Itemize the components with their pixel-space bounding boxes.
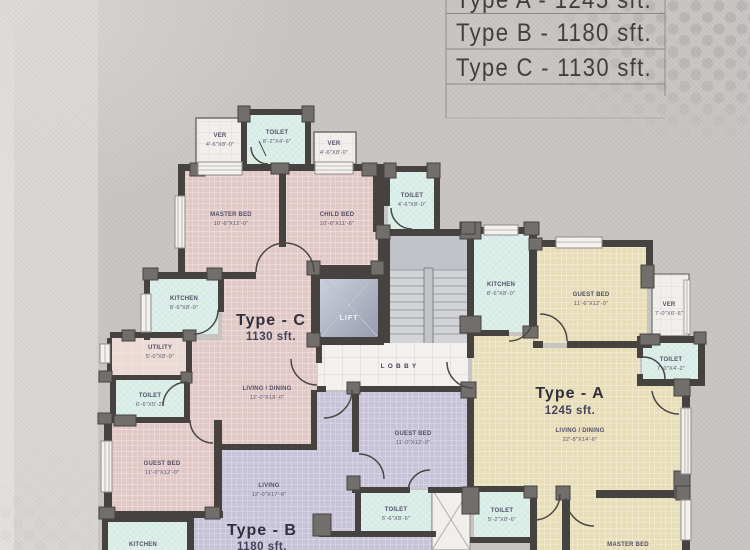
svg-text:MASTER BED: MASTER BED	[210, 212, 252, 218]
svg-text:10'-6"X11'-6": 10'-6"X11'-6"	[320, 221, 354, 227]
svg-text:Type - C: Type - C	[236, 312, 306, 329]
svg-text:5'-0"X8'-0": 5'-0"X8'-0"	[146, 354, 174, 360]
svg-text:4'-6"X8'-0": 4'-6"X8'-0"	[206, 142, 234, 148]
svg-text:VER: VER	[328, 141, 341, 147]
svg-text:TOILET: TOILET	[139, 393, 162, 399]
svg-text:10'-6"X12'-0": 10'-6"X12'-0"	[214, 221, 249, 227]
svg-text:TOILET: TOILET	[266, 130, 289, 136]
svg-text:11'-0"X12'-0": 11'-0"X12'-0"	[145, 470, 179, 476]
svg-text:LIVING: LIVING	[258, 483, 279, 489]
svg-text:Type A - 1245 sft.: Type A - 1245 sft.	[456, 0, 652, 14]
svg-text:Type - B: Type - B	[227, 522, 297, 539]
svg-text:LIFT: LIFT	[340, 315, 359, 322]
svg-text:8'-6"X8'-0": 8'-6"X8'-0"	[170, 305, 198, 311]
svg-text:KITCHEN: KITCHEN	[487, 282, 515, 288]
svg-text:LOBBY: LOBBY	[381, 363, 420, 370]
svg-text:LIVING / DINING: LIVING / DINING	[242, 386, 291, 392]
svg-text:4'-6"X8'-0": 4'-6"X8'-0"	[320, 150, 348, 156]
svg-text:LIVING / DINING: LIVING / DINING	[555, 428, 604, 434]
svg-text:11'-0"X12'-0": 11'-0"X12'-0"	[396, 440, 430, 446]
svg-text:8'-2"X4'-6": 8'-2"X4'-6"	[263, 139, 291, 145]
svg-text:5'-6"X8'-6": 5'-6"X8'-6"	[382, 516, 410, 522]
svg-text:TOILET: TOILET	[491, 508, 514, 514]
svg-text:12'-0"X18'-0": 12'-0"X18'-0"	[250, 395, 285, 401]
svg-text:6'-6"X5'-2": 6'-6"X5'-2"	[136, 402, 164, 408]
svg-text:5'-2"X8'-6": 5'-2"X8'-6"	[488, 517, 516, 523]
svg-text:CHILD BED: CHILD BED	[320, 212, 355, 218]
svg-text:VER: VER	[663, 302, 676, 308]
svg-text:1130 sft.: 1130 sft.	[246, 331, 296, 343]
svg-text:7'-0"X6'-6": 7'-0"X6'-6"	[655, 311, 683, 317]
svg-text:1245 sft.: 1245 sft.	[545, 405, 596, 417]
svg-text:Type B - 1180 sft.: Type B - 1180 sft.	[456, 19, 652, 47]
svg-text:TOILET: TOILET	[401, 193, 424, 199]
svg-text:GUEST BED: GUEST BED	[395, 431, 432, 437]
svg-text:TOILET: TOILET	[660, 357, 683, 363]
svg-text:4'-6"X8'-0": 4'-6"X8'-0"	[398, 202, 426, 208]
svg-text:GUEST BED: GUEST BED	[573, 292, 610, 298]
svg-text:KITCHEN: KITCHEN	[170, 296, 198, 302]
svg-text:Type - A: Type - A	[535, 385, 604, 402]
svg-text:KITCHEN: KITCHEN	[129, 542, 157, 548]
svg-text:UTILITY: UTILITY	[148, 345, 172, 351]
svg-text:22'-8"X14'-6": 22'-8"X14'-6"	[563, 437, 598, 443]
svg-text:Type C - 1130 sft.: Type C - 1130 sft.	[456, 54, 652, 82]
svg-text:11'-6"X12'-0": 11'-6"X12'-0"	[574, 301, 608, 307]
svg-text:GUEST BED: GUEST BED	[144, 461, 181, 467]
svg-text:VER: VER	[214, 133, 227, 139]
svg-text:TOILET: TOILET	[385, 507, 408, 513]
svg-text:12'-0"X17'-6": 12'-0"X17'-6"	[252, 492, 287, 498]
svg-text:8'-6"X8'-0": 8'-6"X8'-0"	[487, 291, 515, 297]
svg-text:1180 sft.: 1180 sft.	[237, 541, 287, 550]
svg-text:MASTER BED: MASTER BED	[607, 542, 649, 548]
